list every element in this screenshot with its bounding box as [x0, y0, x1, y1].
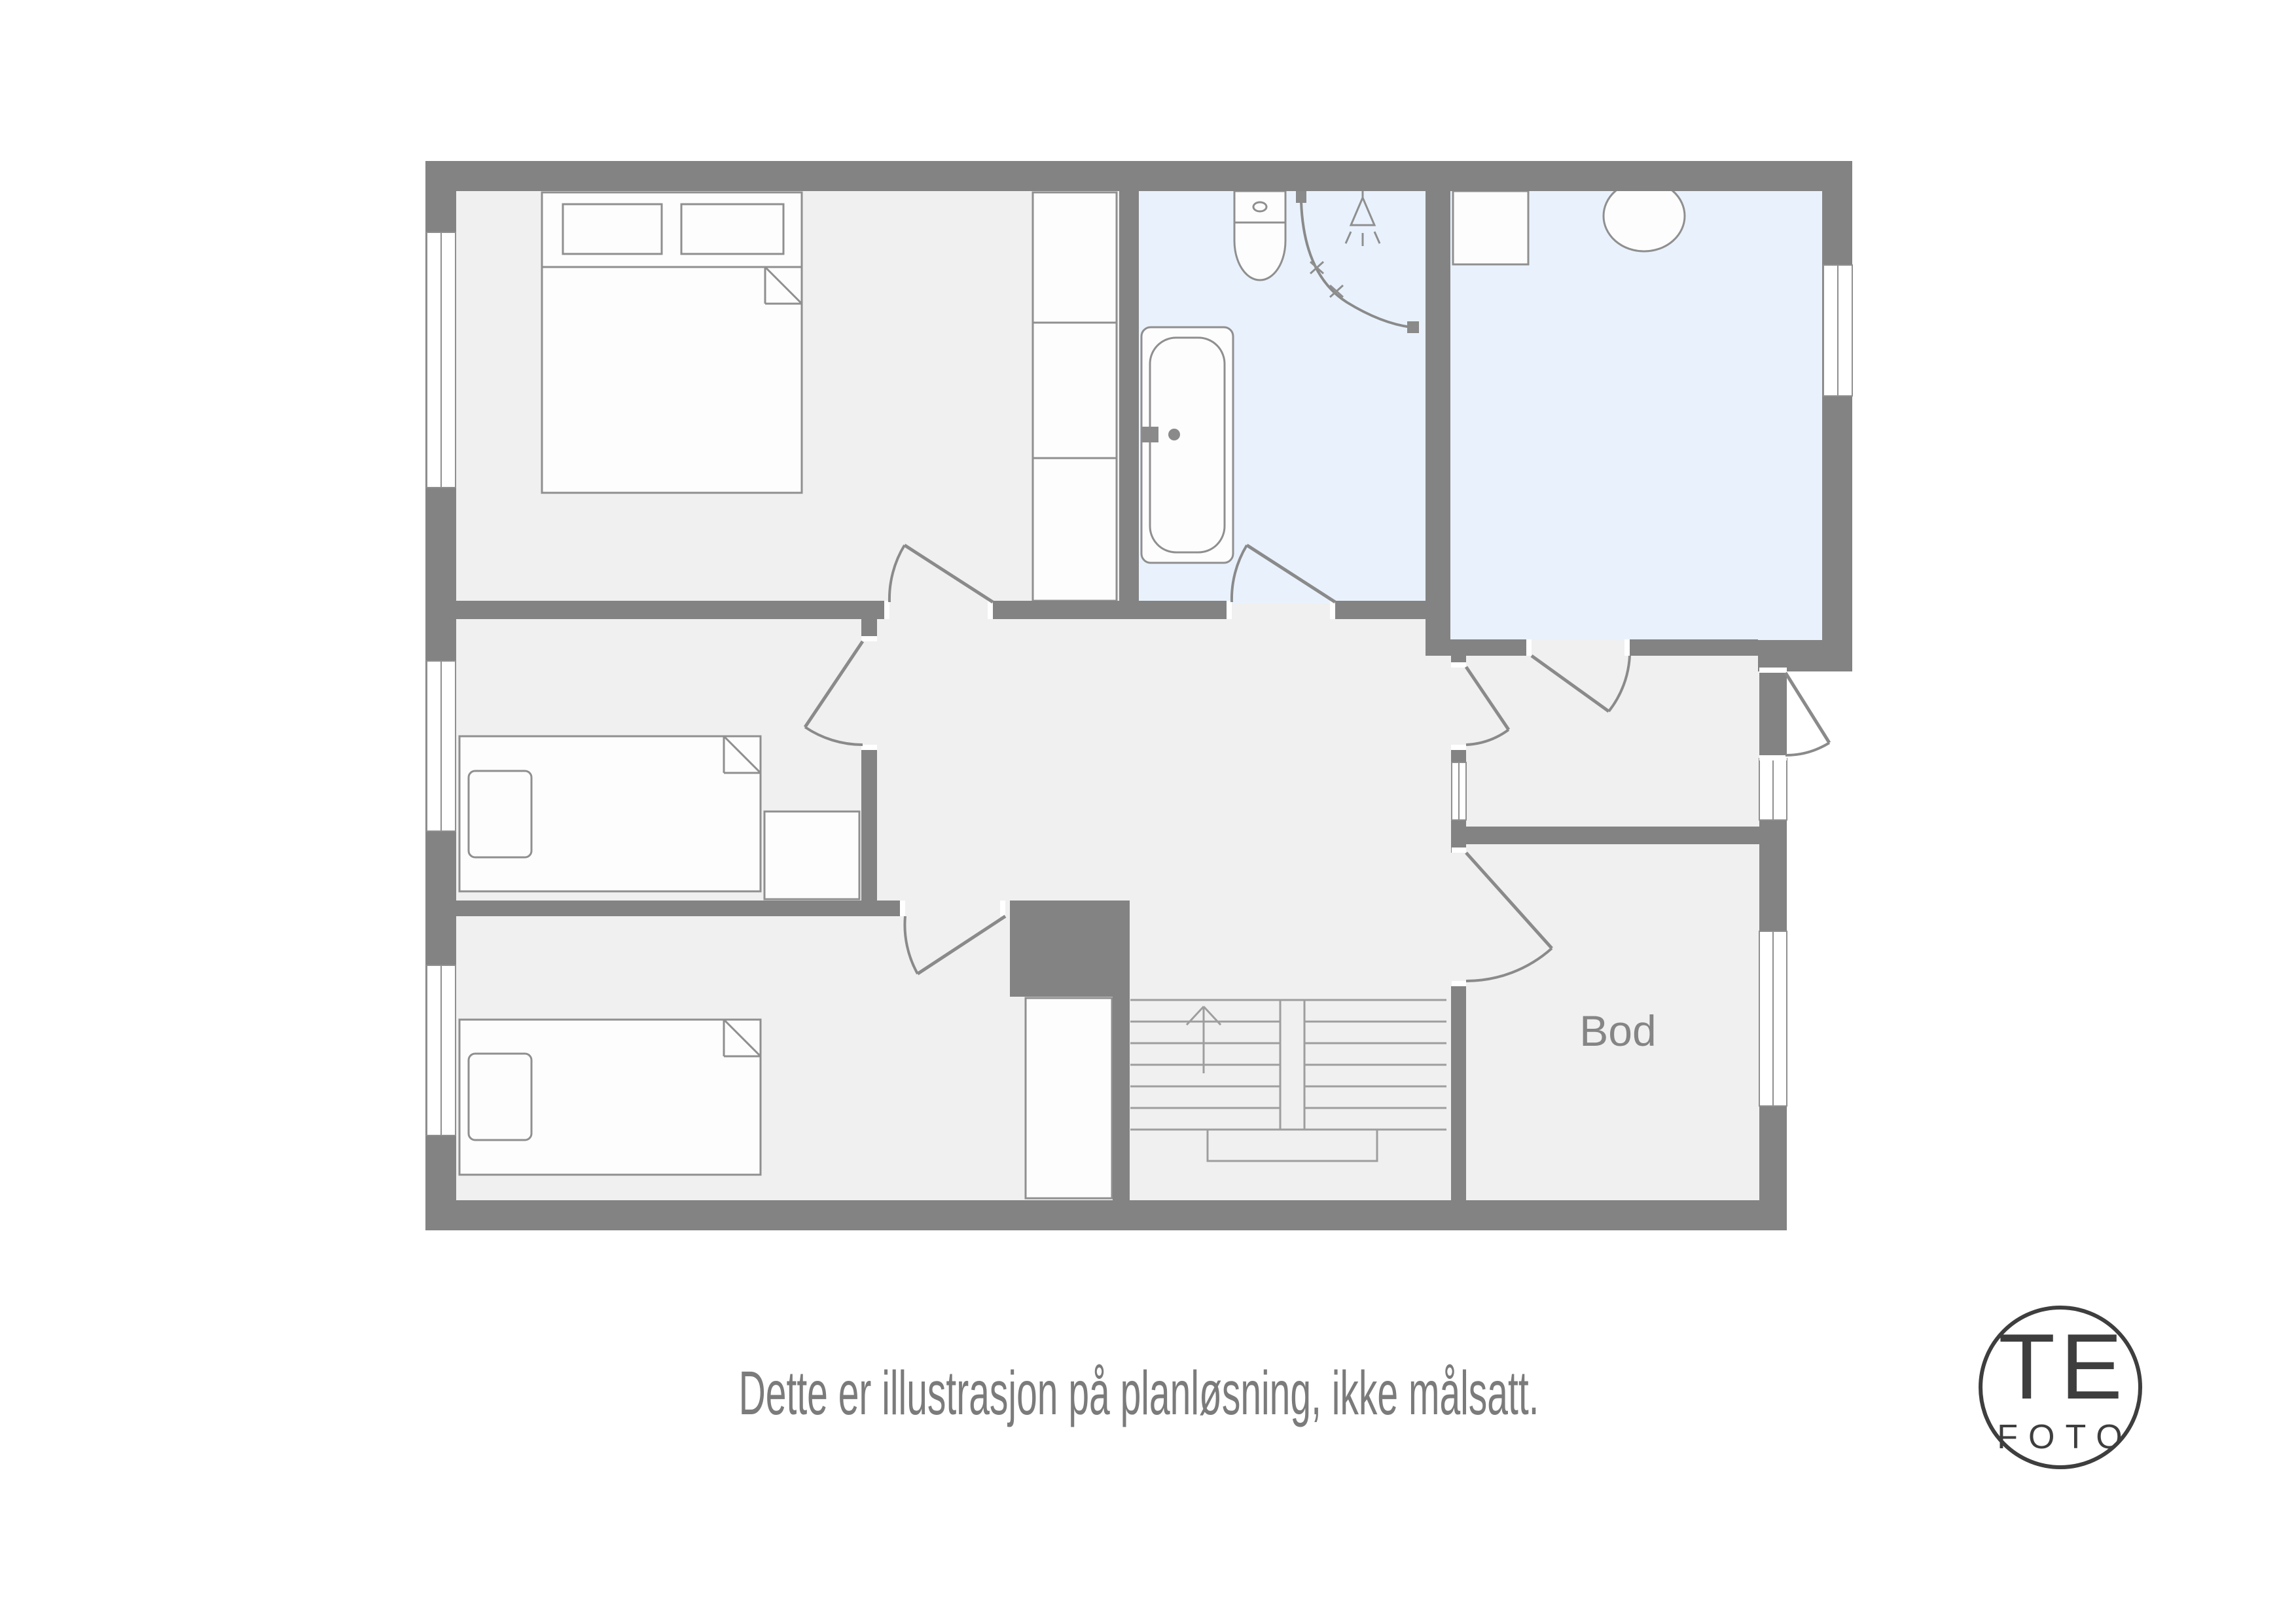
wall-top [425, 161, 1852, 191]
te-foto-logo: TE FOTO [1979, 1306, 2142, 1469]
round-basin [1604, 181, 1685, 251]
curtain-end [1407, 321, 1419, 333]
wall-laundry-south-b [1630, 639, 1758, 656]
double-bed-mattress [542, 267, 802, 493]
outside-area [1787, 671, 1892, 1203]
room-label-bod: Bod [1579, 1007, 1656, 1055]
nightstand [764, 811, 859, 899]
bathtub-drain [1168, 429, 1180, 440]
pillow-right [681, 204, 783, 254]
toilet-tank [1234, 191, 1285, 223]
window-bod [1759, 931, 1787, 1106]
window-bedroom1 [427, 232, 456, 488]
wall-bathroom-west [1119, 190, 1139, 619]
pillow-left [563, 204, 662, 254]
wall-stairwell-west [1113, 997, 1130, 1200]
wall-right-step [1758, 640, 1852, 671]
wall-right-upper [1822, 161, 1852, 671]
logo-circle: TE FOTO [1979, 1306, 2142, 1469]
caption: Dette er illustrasjon på planløsning, ik… [425, 1356, 1852, 1431]
window-corridor-interior [1452, 762, 1466, 820]
bathtub [1141, 327, 1233, 563]
toilet [1234, 191, 1285, 280]
wall-chimney-block [1010, 901, 1130, 997]
floor-plan-page: Bod Dette er illustrasjon på planløsning… [0, 0, 2296, 1623]
wardrobe-body [1033, 192, 1117, 601]
wall-bedroom2-east-b [861, 750, 877, 915]
window-bedroom3 [427, 965, 456, 1135]
wall-corridor-west-b [1451, 750, 1466, 762]
wall-bod-west [1451, 986, 1466, 1200]
wall-bedroom3-north [456, 901, 900, 916]
pillow [469, 771, 531, 857]
double-bed [542, 192, 802, 493]
window-bedroom2 [427, 661, 456, 831]
logo-bottom-text: FOTO [1997, 1420, 2132, 1454]
closet [1026, 998, 1112, 1198]
wardrobe [1033, 192, 1117, 601]
washing-machine [1453, 191, 1528, 264]
curtain-mount [1296, 190, 1306, 203]
window-laundry [1823, 265, 1852, 396]
wall-corridor-west-a [1451, 656, 1466, 662]
wall-bedroom1-south-b [993, 601, 1119, 619]
pillow [469, 1054, 531, 1140]
wall-bedroom2-east-a [861, 601, 877, 636]
logo-top-text: TE [1998, 1321, 2127, 1414]
wall-laundry-south-a [1450, 639, 1526, 656]
wall-bedroom1-south-a [456, 601, 889, 619]
wall-bottom [425, 1200, 1787, 1230]
wall-bathroom-east [1426, 190, 1450, 656]
caption-text: Dette er illustrasjon på planløsning, ik… [739, 1356, 1539, 1431]
bathtub-outer [1141, 327, 1233, 563]
wall-bod-north [1451, 827, 1761, 844]
window-entry-sidelight [1759, 758, 1787, 820]
bathtub-tap [1141, 427, 1158, 442]
wall-bathroom-south-a [1139, 601, 1232, 619]
